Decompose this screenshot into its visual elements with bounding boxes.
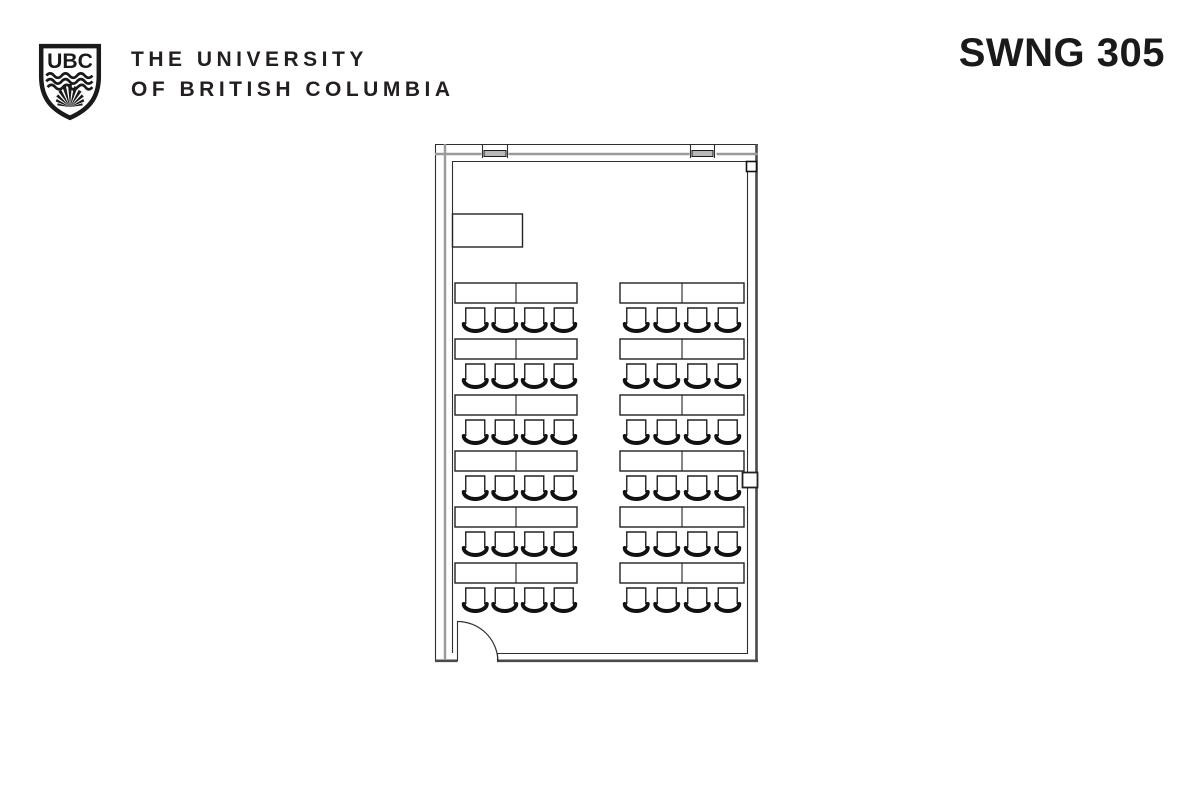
table-group-right-row-3 — [620, 395, 744, 443]
chair-back — [523, 492, 546, 499]
chair-back — [552, 380, 575, 387]
chair-seat — [495, 308, 514, 326]
window-opening-left — [482, 144, 509, 158]
chair-seat — [657, 588, 676, 606]
chair-back — [686, 548, 709, 555]
chair-seat — [466, 364, 485, 382]
chair-seat — [718, 476, 737, 494]
chair-seat — [718, 420, 737, 438]
chair-seat — [718, 588, 737, 606]
chair-seat — [688, 532, 707, 550]
chair-seat — [554, 308, 573, 326]
ubc-logo: UBC — [38, 40, 102, 124]
chair-back — [716, 548, 739, 555]
chair-back — [625, 380, 648, 387]
table-group-left-row-1 — [455, 283, 577, 331]
chair-seat — [495, 532, 514, 550]
chair-back — [464, 604, 487, 611]
chair-back — [686, 604, 709, 611]
chair-back — [716, 492, 739, 499]
chair-seat — [657, 308, 676, 326]
chair-back — [493, 324, 516, 331]
chair-seat — [627, 532, 646, 550]
chair-back — [523, 380, 546, 387]
chair-seat — [525, 476, 544, 494]
chair-back — [686, 380, 709, 387]
chair-back — [655, 492, 678, 499]
chair-seat — [688, 364, 707, 382]
chair-seat — [554, 420, 573, 438]
university-name-line1: THE UNIVERSITY — [131, 45, 454, 75]
instructor-console — [453, 214, 523, 247]
chair-back — [655, 548, 678, 555]
chair-back — [552, 548, 575, 555]
chair-seat — [554, 532, 573, 550]
chair-back — [493, 492, 516, 499]
chair-seat — [657, 476, 676, 494]
chair-back — [716, 380, 739, 387]
chair-back — [493, 380, 516, 387]
chair-back — [716, 324, 739, 331]
chair-back — [523, 604, 546, 611]
chair-back — [625, 324, 648, 331]
chair-back — [552, 492, 575, 499]
chair-back — [686, 436, 709, 443]
chair-seat — [627, 364, 646, 382]
chair-back — [625, 548, 648, 555]
chair-seat — [525, 420, 544, 438]
chair-back — [716, 604, 739, 611]
chair-seat — [718, 532, 737, 550]
chair-seat — [627, 308, 646, 326]
chair-seat — [627, 588, 646, 606]
chair-seat — [525, 532, 544, 550]
table-group-left-row-2 — [455, 339, 577, 387]
university-wordmark: THE UNIVERSITY OF BRITISH COLUMBIA — [131, 45, 454, 105]
chair-back — [552, 436, 575, 443]
chair-seat — [718, 308, 737, 326]
table-group-right-row-4 — [620, 451, 744, 499]
chair-back — [523, 436, 546, 443]
chair-back — [464, 492, 487, 499]
chair-back — [493, 548, 516, 555]
chair-seat — [554, 364, 573, 382]
chair-back — [655, 324, 678, 331]
chair-back — [523, 548, 546, 555]
chair-back — [655, 380, 678, 387]
chair-back — [716, 436, 739, 443]
chair-back — [655, 604, 678, 611]
chair-seat — [627, 476, 646, 494]
window-bar-icon — [692, 151, 713, 157]
university-name-line2: OF BRITISH COLUMBIA — [131, 75, 454, 105]
entry-door — [458, 621, 499, 662]
chair-seat — [554, 588, 573, 606]
chair-seat — [525, 364, 544, 382]
floorplan — [420, 130, 770, 675]
room-title: SWNG 305 — [959, 31, 1165, 76]
chair-seat — [466, 420, 485, 438]
chair-seat — [688, 420, 707, 438]
chair-seat — [657, 532, 676, 550]
chair-seat — [466, 588, 485, 606]
chair-back — [625, 436, 648, 443]
chair-seat — [627, 420, 646, 438]
chair-back — [686, 324, 709, 331]
chair-seat — [466, 532, 485, 550]
chair-seat — [657, 420, 676, 438]
chair-seat — [495, 588, 514, 606]
table-group-right-row-1 — [620, 283, 744, 331]
table-group-left-row-4 — [455, 451, 577, 499]
door-swing-arc — [458, 622, 499, 663]
chair-back — [464, 380, 487, 387]
corner-box — [747, 162, 757, 172]
chair-seat — [688, 476, 707, 494]
chair-back — [552, 604, 575, 611]
furniture-layer — [455, 283, 744, 611]
window-bar-icon — [484, 151, 506, 157]
chair-seat — [466, 308, 485, 326]
table-group-right-row-5 — [620, 507, 744, 555]
window-opening-right — [690, 144, 717, 158]
chair-back — [493, 436, 516, 443]
chair-back — [464, 324, 487, 331]
chair-back — [686, 492, 709, 499]
chair-seat — [495, 420, 514, 438]
chair-back — [464, 436, 487, 443]
chair-seat — [495, 476, 514, 494]
chair-seat — [718, 364, 737, 382]
chair-seat — [525, 588, 544, 606]
chair-seat — [495, 364, 514, 382]
table-group-left-row-3 — [455, 395, 577, 443]
chair-back — [493, 604, 516, 611]
chair-back — [464, 548, 487, 555]
chair-back — [625, 492, 648, 499]
chair-seat — [657, 364, 676, 382]
chair-seat — [688, 308, 707, 326]
chair-back — [552, 324, 575, 331]
ubc-shield-icon: UBC — [38, 40, 102, 124]
chair-seat — [688, 588, 707, 606]
page: { "page": { "background": "#ffffff", "in… — [0, 0, 1200, 800]
chair-seat — [525, 308, 544, 326]
table-group-left-row-5 — [455, 507, 577, 555]
wall-box — [743, 473, 758, 488]
chair-back — [523, 324, 546, 331]
table-group-right-row-2 — [620, 339, 744, 387]
chair-back — [625, 604, 648, 611]
table-group-right-row-6 — [620, 563, 744, 611]
chair-seat — [554, 476, 573, 494]
chair-seat — [466, 476, 485, 494]
chair-back — [655, 436, 678, 443]
logo-acronym: UBC — [47, 50, 93, 73]
table-group-left-row-6 — [455, 563, 577, 611]
